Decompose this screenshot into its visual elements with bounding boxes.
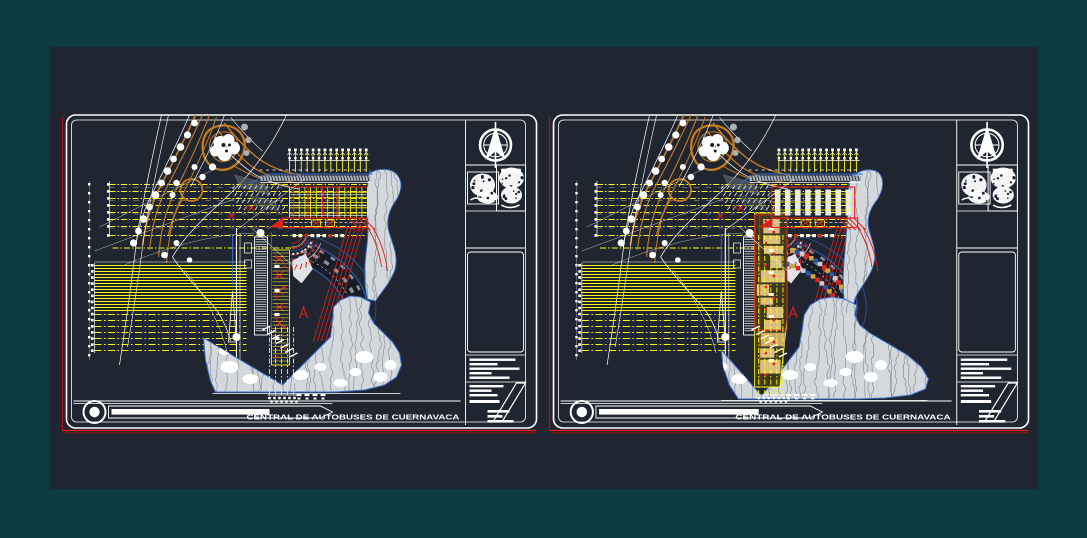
- svg-text:CENTRAL DE AUTOBUSES DE CUERNA: CENTRAL DE AUTOBUSES DE CUERNAVACA: [735, 415, 950, 422]
- svg-text:CENTRAL DE AUTOBUSES DE CUERNA: CENTRAL DE AUTOBUSES DE CUERNAVACA: [247, 415, 460, 422]
